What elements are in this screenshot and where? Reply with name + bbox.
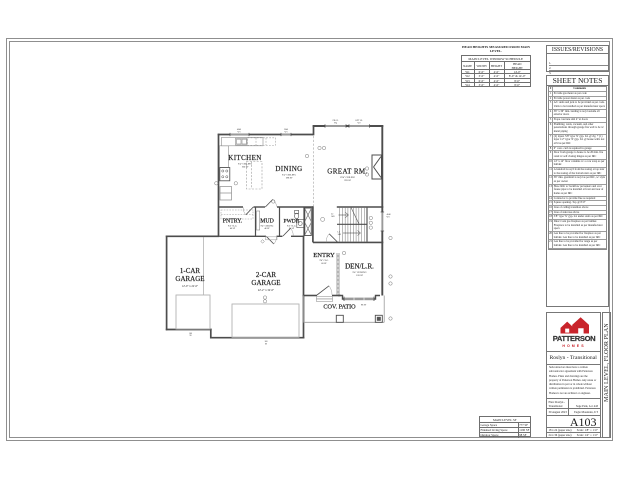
svg-text:21 SF: 21 SF — [289, 228, 295, 230]
svg-text:160 SF: 160 SF — [242, 165, 250, 168]
svg-text:COV. PATIO: COV. PATIO — [323, 303, 356, 310]
svg-text:9'4" CLG.: 9'4" CLG. — [320, 260, 329, 262]
svg-text:KITCHEN: KITCHEN — [228, 154, 262, 162]
svg-text:9'4" CEILING: 9'4" CEILING — [261, 225, 274, 227]
svg-text:GARAGE: GARAGE — [175, 275, 204, 283]
svg-text:W2: W2 — [357, 123, 360, 125]
svg-text:1-CAR: 1-CAR — [180, 267, 201, 275]
svg-text:DINING: DINING — [275, 165, 302, 173]
svg-text:9'4" CLG.: 9'4" CLG. — [287, 225, 296, 227]
svg-text:46 SF: 46 SF — [264, 228, 270, 230]
svg-text:90: 90 — [189, 335, 191, 337]
svg-text:14R: 14R — [331, 216, 335, 218]
svg-text:PATTERSON: PATTERSON — [553, 334, 596, 343]
svg-text:9'4" CLG.: 9'4" CLG. — [228, 225, 237, 227]
svg-text:W1: W1 — [284, 131, 287, 133]
svg-text:14R: 14R — [338, 234, 342, 236]
svg-text:PNTRY.: PNTRY. — [223, 219, 243, 225]
svg-text:2-CAR: 2-CAR — [256, 271, 277, 279]
svg-text:W3: W3 — [387, 216, 390, 218]
svg-text:W1: W1 — [237, 131, 240, 133]
svg-text:W4: W4 — [334, 123, 337, 125]
svg-text:MUD: MUD — [260, 219, 274, 225]
svg-text:PWDR: PWDR — [284, 219, 300, 225]
svg-text:22'-2" x 34'-0": 22'-2" x 34'-0" — [258, 289, 274, 292]
svg-text:ENTRY: ENTRY — [313, 252, 335, 259]
svg-text:98 SF: 98 SF — [361, 305, 367, 307]
svg-text:GREAT RM.: GREAT RM. — [327, 168, 367, 176]
svg-text:120 SF: 120 SF — [356, 274, 364, 277]
svg-text:12'-0" x 22'-0": 12'-0" x 22'-0" — [182, 285, 198, 288]
svg-text:198 SF: 198 SF — [286, 176, 294, 179]
svg-text:GARAGE: GARAGE — [251, 279, 280, 287]
svg-text:DEN/L.R.: DEN/L.R. — [345, 263, 374, 271]
svg-text:HOMES: HOMES — [562, 343, 585, 347]
svg-text:80: 80 — [265, 344, 267, 346]
svg-text:60 SF: 60 SF — [321, 263, 327, 265]
svg-text:393 SF: 393 SF — [344, 179, 352, 182]
svg-text:40 SF: 40 SF — [230, 228, 236, 230]
